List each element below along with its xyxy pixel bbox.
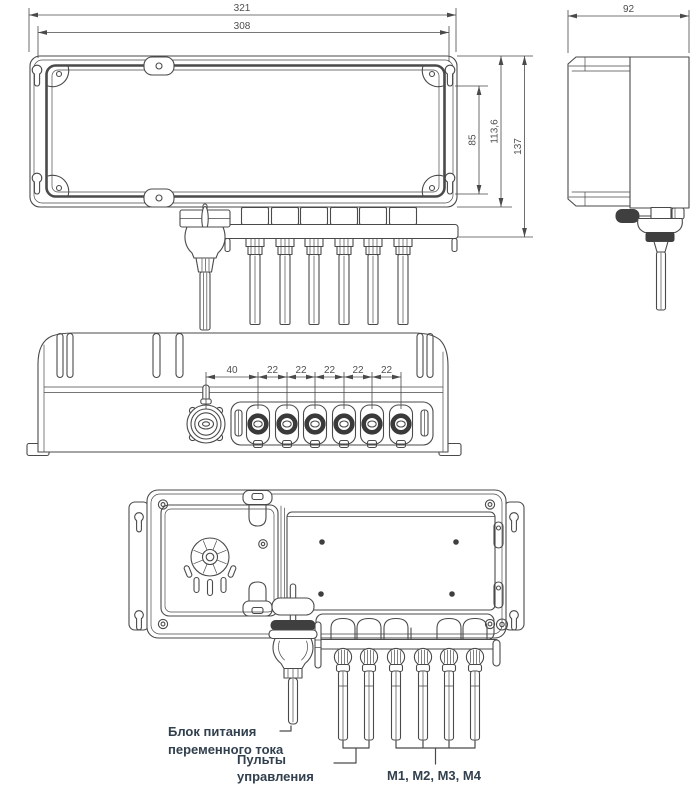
center-tab-top	[144, 57, 174, 75]
terminal-cell	[272, 208, 299, 225]
dim-depth-value: 92	[623, 4, 635, 15]
gland-rail	[222, 225, 458, 239]
keyhole-slot	[32, 173, 42, 194]
cable-gland-top	[334, 648, 351, 740]
power-plug-top	[269, 584, 317, 724]
dim-pitch-value-1: 22	[267, 365, 279, 376]
dim-pitch-value-3: 22	[324, 365, 336, 376]
bracket-motors	[396, 741, 475, 764]
cable-gland-front	[276, 239, 294, 325]
terminal-cell	[360, 208, 387, 225]
cable-gland-top	[360, 648, 377, 740]
label-remote-controls-line1: Пульты	[237, 752, 286, 767]
front-view: 321 308	[29, 3, 533, 330]
cable-gland-top	[414, 648, 431, 740]
cable-gland-top	[466, 648, 483, 740]
dim-depth: 92	[568, 4, 689, 53]
cable-gland-front	[305, 239, 323, 325]
label-power-supply-line1: Блок питания	[168, 724, 256, 739]
bracket-remotes	[334, 741, 369, 763]
keyhole-slot	[445, 65, 455, 86]
terminal-cell	[331, 208, 358, 225]
label-remote-controls-line2: управления	[237, 769, 314, 784]
drawing-canvas: 321 308	[0, 0, 691, 800]
keyhole-slot	[445, 173, 455, 194]
dim-mount-pitch-vertical: 85	[455, 86, 488, 194]
technical-drawing-page: 321 308	[0, 0, 691, 800]
enclosure-front-body	[30, 56, 457, 207]
dim-mount-width-value: 308	[234, 21, 251, 32]
enclosure-side-body	[568, 57, 689, 208]
dim-pitch-value-2: 22	[295, 365, 307, 376]
label-motors: М1, М2, М3, М4	[387, 768, 482, 783]
corner-screw-bosses	[48, 66, 443, 196]
dim-power-offset-value: 40	[226, 365, 238, 376]
dim-outer-width-value: 321	[234, 3, 251, 14]
side-latch-peg	[672, 208, 684, 219]
output-cables-top	[334, 648, 483, 740]
terminal-cell	[301, 208, 328, 225]
bottom-view: 40 22 22 22 22 22	[27, 333, 461, 456]
top-view: Блок питания переменного тока Пульты упр…	[129, 490, 524, 784]
output-cables-front	[246, 239, 412, 325]
power-cable-front	[200, 272, 210, 330]
cable-gland-front	[335, 239, 353, 325]
dim-pitch-value-5: 22	[381, 365, 393, 376]
side-view: 92	[568, 4, 689, 310]
leader-power	[280, 726, 291, 731]
dim-body-height-value: 113,6	[490, 119, 501, 144]
dim-pitch-value-4: 22	[352, 365, 364, 376]
cable-gland-front	[364, 239, 382, 325]
cable-gland-front	[394, 239, 412, 325]
side-cable-gland	[638, 208, 683, 311]
dim-total-height-value: 137	[513, 138, 524, 155]
cable-gland-top	[440, 648, 457, 740]
center-tab-bottom	[144, 189, 174, 207]
dim-body-height: 113,6	[457, 56, 533, 207]
keyhole-slots-front	[32, 65, 455, 194]
dim-mount-pitch-value: 85	[468, 134, 479, 146]
terminal-cell	[242, 208, 269, 225]
terminal-cell	[390, 208, 417, 225]
keyhole-slot	[32, 65, 42, 86]
power-plug-front	[180, 204, 230, 330]
cable-gland-top	[387, 648, 404, 740]
gland-rail-top	[318, 640, 498, 650]
cable-gland-front	[246, 239, 264, 325]
